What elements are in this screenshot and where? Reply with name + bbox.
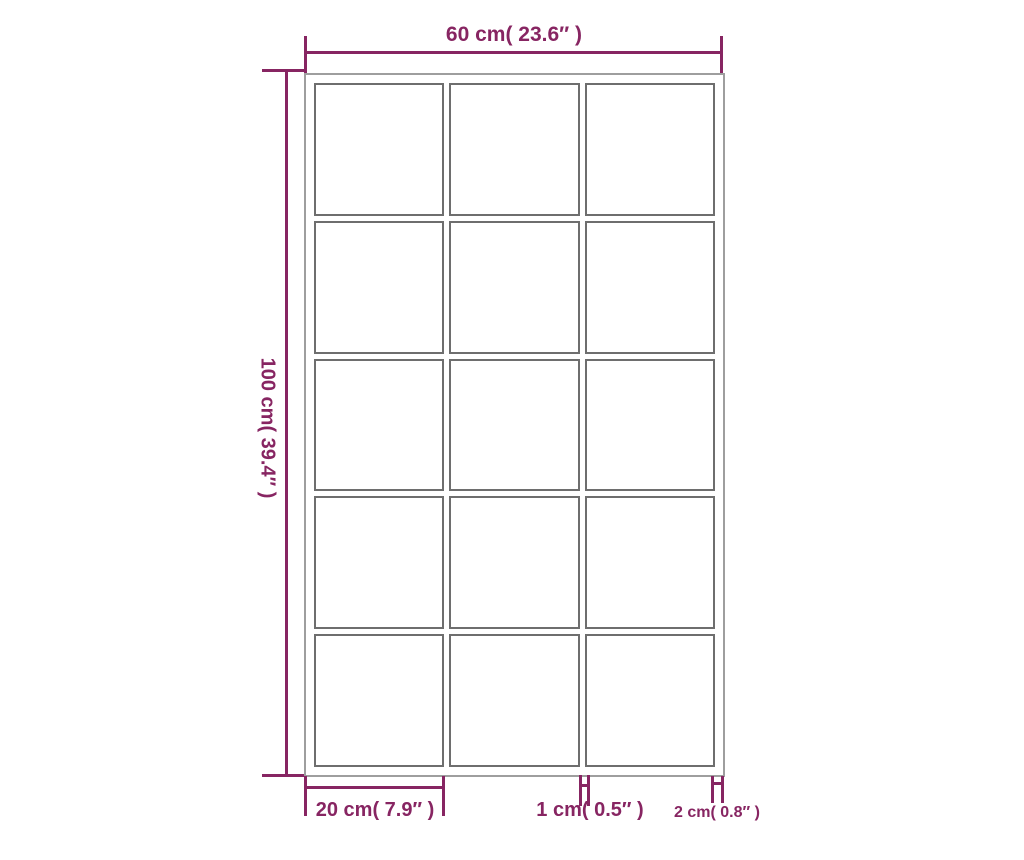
window-pane: [449, 83, 579, 216]
window-pane: [585, 496, 715, 629]
window-pane: [314, 221, 444, 354]
mullion-width-connector: [579, 784, 590, 787]
height-dimension-tick-bottom: [262, 774, 304, 777]
window-pane: [449, 359, 579, 492]
window-pane: [449, 221, 579, 354]
frame-thickness-tick-right: [721, 776, 724, 803]
mullion-width-label: 1 cm( 0.5″ ): [515, 799, 665, 822]
window-pane: [585, 83, 715, 216]
window-pane: [585, 359, 715, 492]
pane-width-dimension-line: [305, 786, 445, 789]
window-frame: [304, 73, 725, 777]
pane-width-dimension-label: 20 cm( 7.9″ ): [300, 799, 450, 822]
height-dimension-label: 100 cm( 39.4″ ): [256, 358, 279, 499]
frame-thickness-label: 2 cm( 0.8″ ): [646, 804, 788, 822]
window-pane: [449, 496, 579, 629]
height-dimension-line: [285, 69, 288, 777]
window-pane: [314, 496, 444, 629]
window-pane: [585, 634, 715, 767]
pane-grid: [314, 83, 715, 767]
window-pane: [314, 83, 444, 216]
height-dimension-tick-top: [262, 69, 304, 72]
frame-thickness-connector: [711, 782, 724, 785]
window-pane: [314, 359, 444, 492]
frame-thickness-tick-left: [711, 776, 714, 803]
diagram-canvas: 60 cm( 23.6″ ) 100 cm( 39.4″ ) 20 cm( 7.…: [0, 0, 1024, 860]
window-pane: [585, 221, 715, 354]
window-pane: [314, 634, 444, 767]
width-dimension-label: 60 cm( 23.6″ ): [305, 23, 723, 47]
window-pane: [449, 634, 579, 767]
width-dimension-line: [305, 51, 723, 54]
